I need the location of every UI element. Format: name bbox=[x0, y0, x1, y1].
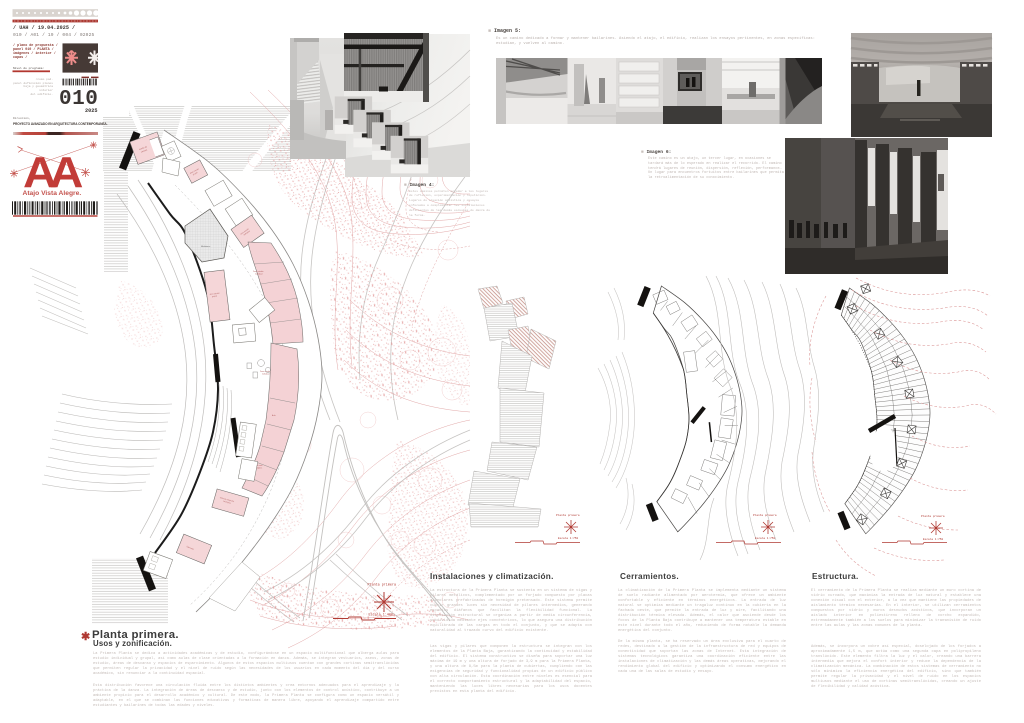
svg-text:Mediateca: Mediateca bbox=[201, 245, 211, 248]
svg-text:Planta primera: Planta primera bbox=[921, 514, 945, 518]
svg-text:Aula: Aula bbox=[272, 414, 276, 417]
svg-text:Escala 1:750: Escala 1:750 bbox=[558, 536, 578, 540]
svg-text:Escala 1:400: Escala 1:400 bbox=[369, 613, 393, 618]
svg-text:Escala 1:750: Escala 1:750 bbox=[755, 536, 775, 540]
svg-text:individual: individual bbox=[262, 374, 270, 376]
svg-text:Planta primera: Planta primera bbox=[753, 513, 777, 517]
svg-text:Escala 1:750: Escala 1:750 bbox=[923, 537, 943, 541]
svg-text:Planta primera: Planta primera bbox=[368, 583, 397, 588]
svg-text:Planta primera: Planta primera bbox=[556, 513, 580, 517]
svg-text:individual: individual bbox=[255, 274, 263, 276]
